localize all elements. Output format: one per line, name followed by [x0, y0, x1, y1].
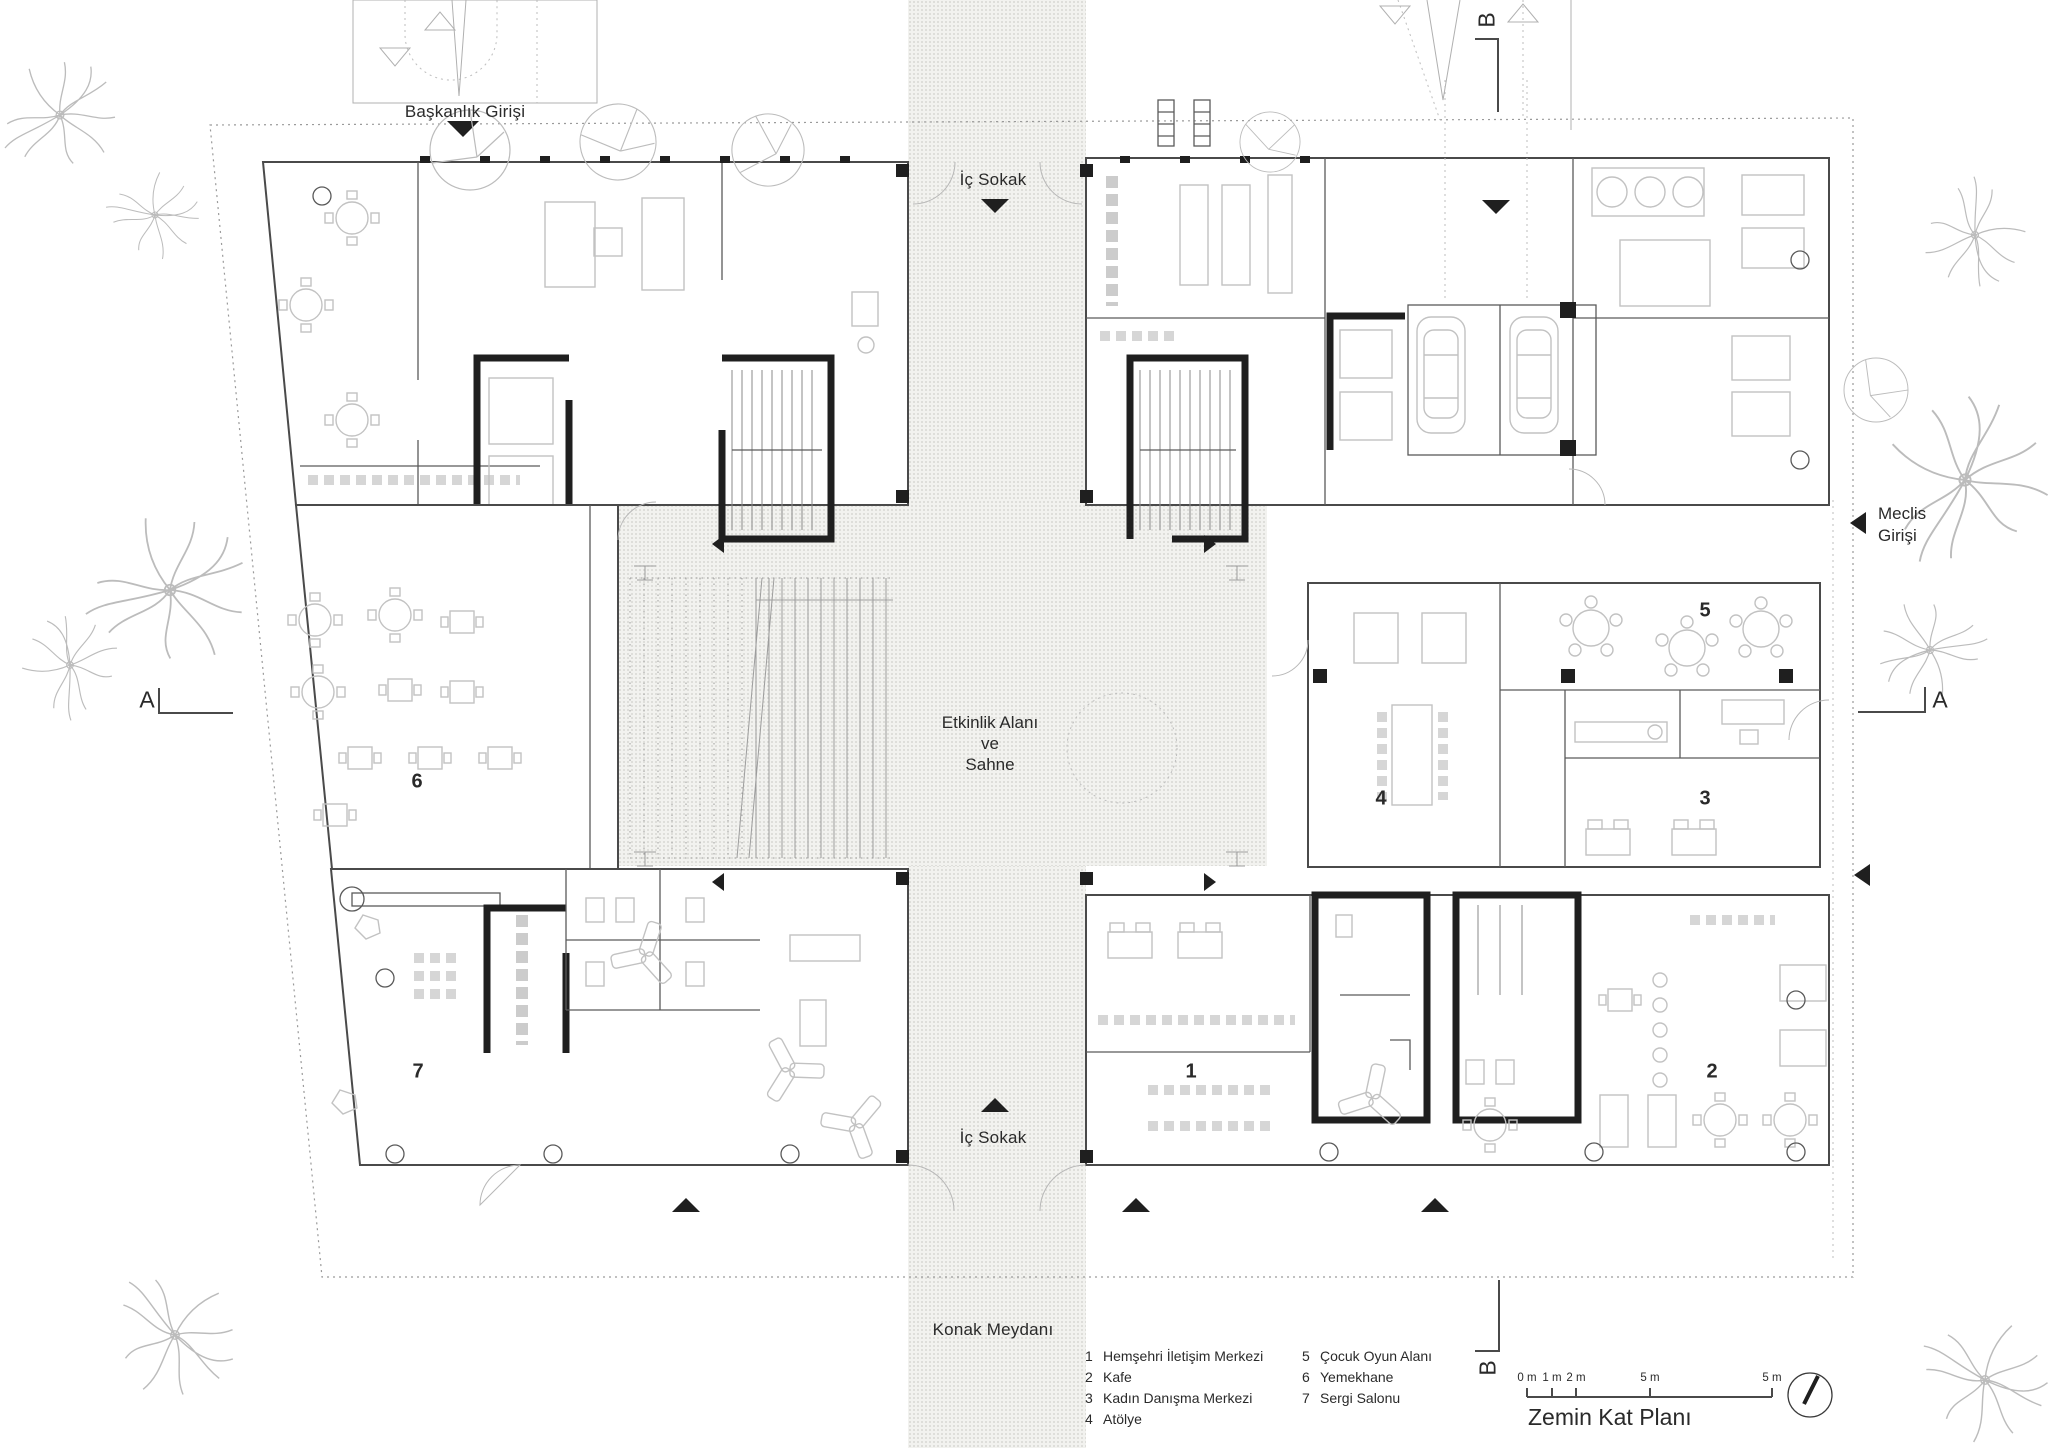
section-b-top: B [1474, 12, 1501, 27]
baskanlik-ramp [353, 0, 597, 103]
legend-item-2: 2Kafe [1085, 1367, 1263, 1388]
section-a-left: A [139, 687, 154, 714]
label-baskanlik-girisi: Başkanlık Girişi [405, 102, 525, 122]
building-bottom-left [331, 869, 908, 1165]
arrow-plaza-left-1 [712, 535, 724, 553]
room-number-7: 7 [412, 1061, 423, 1084]
floor-plan-canvas: Başkanlık Girişi İç Sokak İç Sokak Konak… [0, 0, 2048, 1448]
legend-item-5: 5Çocuk Oyun Alanı [1302, 1346, 1432, 1367]
building-right-middle [1308, 583, 1820, 867]
arrow-ic-sokak-top [981, 199, 1009, 213]
building-top-left [263, 156, 908, 505]
legend-item-6: 6Yemekhane [1302, 1367, 1432, 1388]
north-right-ramp [1158, 0, 1571, 146]
label-konak-meydani: Konak Meydanı [933, 1320, 1054, 1340]
arrow-south-3 [1421, 1198, 1449, 1212]
legend-item-1: 1Hemşehri İletişim Merkezi [1085, 1346, 1263, 1367]
arrow-plaza-right-2 [1204, 873, 1216, 891]
room-number-5: 5 [1699, 600, 1710, 623]
room-number-3: 3 [1699, 788, 1710, 811]
scale-label-2: 2 m [1566, 1372, 1585, 1384]
legend-column-1: 1Hemşehri İletişim Merkezi 2Kafe 3Kadın … [1085, 1346, 1263, 1430]
arrow-right-lower [1854, 864, 1870, 886]
scale-label-0: 0 m [1517, 1372, 1536, 1384]
arrow-south-2 [1122, 1198, 1150, 1212]
legend-item-4: 4Atölye [1085, 1409, 1263, 1430]
legend-item-7: 7Sergi Salonu [1302, 1388, 1432, 1409]
scale-label-4: 5 m [1762, 1372, 1781, 1384]
building-bottom-right [1086, 895, 1829, 1165]
scale-bar [1527, 1388, 1772, 1397]
room-number-4: 4 [1375, 788, 1386, 811]
label-meclis-line1: Meclis [1878, 504, 1926, 524]
amphitheater-steps [630, 566, 1248, 866]
dining-wing [288, 505, 618, 869]
label-etkinlik-1: Etkinlik Alanı [942, 713, 1038, 733]
label-etkinlik-3: Sahne [965, 755, 1014, 775]
arrow-ic-sokak-bottom [981, 1098, 1009, 1112]
label-meclis-line2: Girişi [1878, 526, 1917, 546]
legend-column-2: 5Çocuk Oyun Alanı 6Yemekhane 7Sergi Salo… [1302, 1346, 1432, 1409]
room-number-6: 6 [411, 771, 422, 794]
building-top-right [1086, 156, 1829, 505]
room-number-1: 1 [1185, 1061, 1196, 1084]
room-number-2: 2 [1706, 1061, 1717, 1084]
label-ic-sokak-top: İç Sokak [960, 170, 1027, 190]
label-etkinlik-2: ve [981, 734, 999, 754]
stage-circle [1067, 693, 1177, 803]
drawing-title: Zemin Kat Planı [1528, 1404, 1692, 1431]
arrow-south-1 [672, 1198, 700, 1212]
facade-columns [896, 164, 1093, 1163]
legend-item-3: 3Kadın Danışma Merkezi [1085, 1388, 1263, 1409]
label-ic-sokak-bottom: İç Sokak [960, 1128, 1027, 1148]
north-arrow [1788, 1373, 1832, 1417]
section-a-right: A [1932, 687, 1947, 714]
scale-label-3: 5 m [1640, 1372, 1659, 1384]
scale-label-1: 1 m [1542, 1372, 1561, 1384]
section-b-bottom: B [1475, 1360, 1502, 1375]
